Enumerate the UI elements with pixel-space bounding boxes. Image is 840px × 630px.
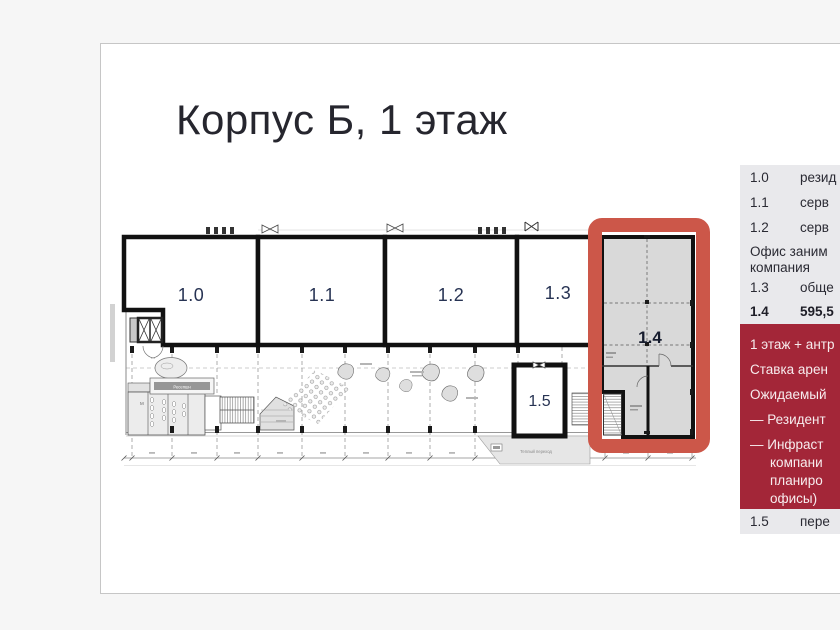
detail-bullet: — Инфраст — [750, 436, 840, 454]
wc-label: М — [140, 401, 144, 406]
detail-line: Ожидаемый — [750, 386, 840, 404]
detail-bullet-cont: офисы) — [750, 490, 840, 508]
unit-row-1-1: 1.1 серв — [740, 190, 840, 215]
unit-area-value: 595,5 — [800, 305, 834, 319]
unit-number: 1.5 — [750, 515, 800, 529]
detail-bullet: — Резидент — [750, 411, 840, 429]
unit-row-1-2: 1.2 серв — [740, 215, 840, 240]
room-1-5: 1.5 — [514, 362, 565, 436]
unit-description: серв — [800, 221, 829, 235]
detail-bullet-cont: компани — [750, 454, 840, 472]
detail-line: Ставка арен — [750, 361, 840, 379]
page-title: Корпус Б, 1 этаж — [176, 96, 508, 144]
walkway-label: Теплый переход — [520, 449, 552, 454]
reception-area: Ресепшн — [150, 358, 214, 395]
unit-description: серв — [800, 196, 829, 210]
reception-label: Ресепшн — [173, 385, 191, 390]
room-1-5-label: 1.5 — [528, 393, 550, 410]
room-1-3-label: 1.3 — [545, 283, 572, 303]
detail-line: 1 этаж + антр — [750, 336, 840, 354]
unit-number: 1.0 — [750, 171, 800, 185]
room-1-0-label: 1.0 — [178, 285, 205, 305]
detail-bullet-cont: планиро — [750, 472, 840, 490]
office-note-line2: компания — [750, 260, 840, 276]
unit-1-4-details: 1 этаж + антр Ставка арен Ожидаемый — Ре… — [740, 324, 840, 509]
unit-number: 1.2 — [750, 221, 800, 235]
unit-row-1-4: 1.4 595,5 — [740, 300, 840, 324]
unit-number: 1.3 — [750, 281, 800, 295]
elevator-block — [130, 318, 163, 358]
floor-plan-drawing: М Ресепшн Теплый — [110, 200, 715, 485]
unit-description: обще — [800, 281, 834, 295]
stairs-left — [220, 397, 254, 423]
facade-marks — [206, 222, 598, 234]
planters — [338, 364, 484, 401]
office-note-line1: Офис заним — [750, 244, 840, 260]
left-facade-wall — [110, 304, 115, 362]
room-1-4-label: 1.4 — [638, 328, 662, 347]
room-1-4: 1.4 — [600, 235, 694, 437]
warm-walkway: Теплый переход — [478, 436, 590, 464]
unit-number: 1.1 — [750, 196, 800, 210]
unit-number: 1.4 — [750, 305, 800, 319]
lobby-room — [205, 396, 221, 430]
unit-description: пере — [800, 515, 830, 529]
unit-legend-panel: 1.0 резид 1.1 серв 1.2 серв Офис заним к… — [740, 165, 840, 534]
floor-plan: М Ресепшн Теплый — [110, 200, 715, 485]
unit-row-1-5: 1.5 пере — [740, 509, 840, 534]
unit-description: резид — [800, 171, 836, 185]
room-1-2-label: 1.2 — [438, 285, 465, 305]
unit-row-1-3: 1.3 обще — [740, 276, 840, 300]
office-note: Офис заним компания — [740, 240, 840, 276]
stairs-right — [572, 393, 590, 425]
unit-row-1-0: 1.0 резид — [740, 165, 840, 190]
room-1-1-label: 1.1 — [309, 285, 336, 305]
